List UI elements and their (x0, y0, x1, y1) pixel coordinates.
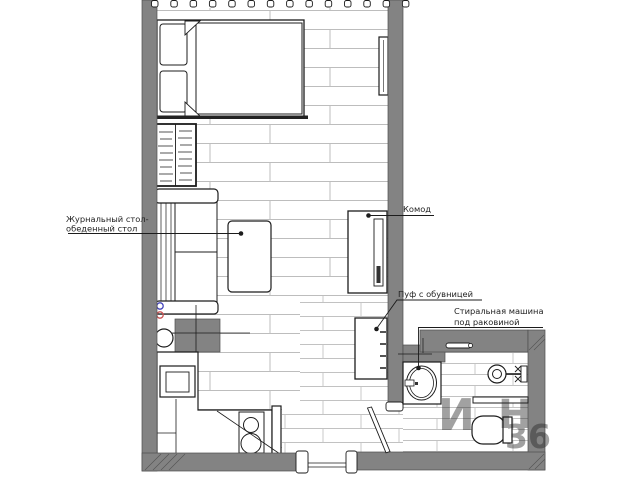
counter-end-panel (272, 406, 281, 455)
door-jamb (296, 451, 308, 473)
sofa (155, 189, 218, 314)
threshold (308, 463, 346, 467)
shelving-unit (155, 124, 196, 186)
pillow (160, 24, 187, 65)
mattress (196, 23, 302, 114)
shower-mixer (521, 366, 527, 382)
floor-plan-drawing: И Н 36 Журнальный стол- обеденный стол К… (0, 0, 620, 480)
coffee-table (228, 221, 271, 292)
annotation-text: Комод (403, 204, 431, 214)
bed-frame-edge (155, 116, 308, 120)
curtain-hooks (152, 1, 409, 8)
floor-plan: И Н 36 Журнальный стол- обеденный стол К… (0, 0, 620, 480)
washbasin-cabinet (403, 362, 441, 404)
pouf-shoe-rack (355, 318, 387, 379)
watermark-fragment: И (438, 390, 475, 441)
leader-dot (239, 231, 244, 236)
sofa-armrest (155, 189, 218, 203)
sofa-back (155, 200, 176, 303)
annotation-text: Журнальный стол- (66, 214, 149, 224)
annotation-text: под раковиной (454, 317, 520, 327)
sofa-armrest (155, 301, 218, 314)
door-jamb (386, 402, 403, 411)
annotation-text: Стиральная машина (454, 306, 544, 316)
wall-right (388, 0, 403, 408)
door-jamb (346, 451, 357, 473)
annotation-text: Пуф с обувницей (398, 289, 473, 299)
towel-rail (446, 343, 473, 348)
faucet (405, 380, 414, 386)
wall-bathroom-top-b (420, 330, 528, 352)
bed (155, 20, 308, 119)
stool (155, 329, 173, 347)
dresser (348, 211, 387, 293)
leader-dot (366, 213, 371, 218)
watermark-fragment: 36 (505, 417, 551, 456)
leader-dot (416, 366, 421, 371)
annotation-text: обеденный стол (66, 224, 137, 234)
wall-left (142, 0, 157, 471)
leader-dot (374, 327, 379, 332)
pillow (160, 71, 187, 112)
